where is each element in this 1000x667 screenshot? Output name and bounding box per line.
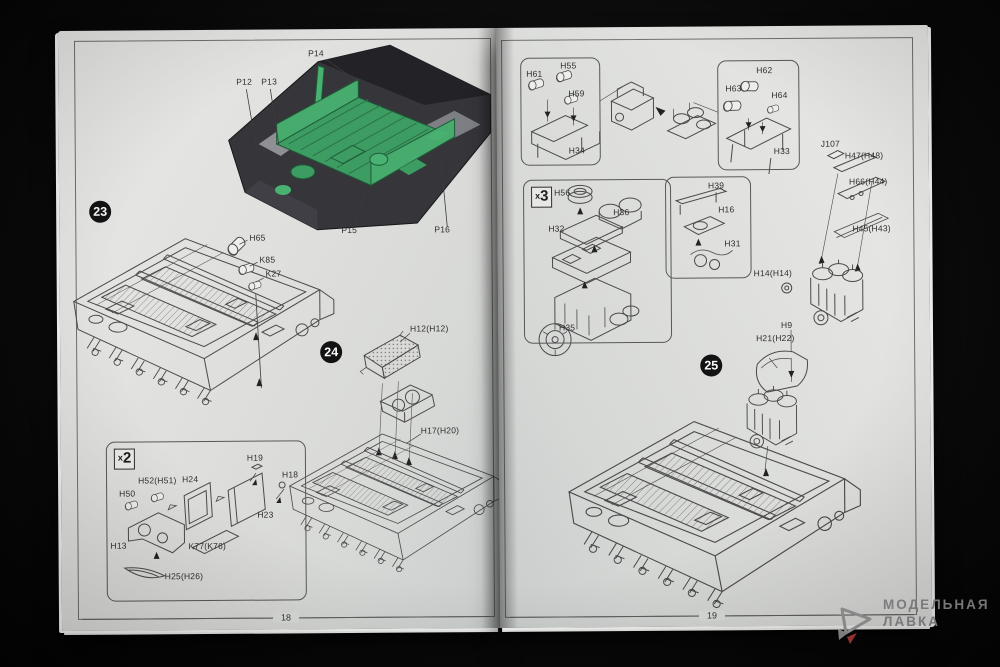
step-badge-24: 24 <box>320 341 342 363</box>
watermark-text: МОДЕЛЬНАЯ ЛАВКА <box>883 597 990 631</box>
part-label-h12: H12(H12) <box>410 324 449 333</box>
part-label-h63: H63 <box>725 84 741 93</box>
part-label-h45: H45(H43) <box>852 224 891 233</box>
part-label-h32: H32 <box>548 225 564 234</box>
part-label-p13: P13 <box>261 78 277 87</box>
part-label-h55: H55 <box>560 61 576 70</box>
part-label-h9: H9 <box>781 321 792 330</box>
part-label-h47: H47(H48) <box>845 151 884 160</box>
paper-plane-logo-icon <box>834 597 876 645</box>
part-label-h25: H25(H26) <box>165 572 204 581</box>
part-label-h18: H18 <box>282 470 298 479</box>
part-label-h61: H61 <box>526 70 542 79</box>
part-label-p16: P16 <box>434 225 450 234</box>
engine-drawing-step25 <box>747 386 797 448</box>
page-19: H61 H55 H59 H34 H62 H63 H64 H33 J107 H47… <box>496 25 932 628</box>
part-label-h36: H36 <box>613 208 629 217</box>
part-label-p12: P12 <box>236 78 252 87</box>
column-drawing <box>818 150 889 271</box>
part-label-j107: J107 <box>821 140 840 149</box>
watermark-line1: МОДЕЛЬНАЯ <box>883 597 990 614</box>
booklet: P12 P13 P14 P15 P16 23 H65 K85 K27 24 H1… <box>58 25 932 631</box>
part-label-h50: H50 <box>119 490 135 499</box>
step25-drawing <box>756 330 808 476</box>
multiplier-x3: x3 <box>531 187 553 208</box>
multiplier-x3-value: 3 <box>540 188 548 205</box>
part-label-h31: H31 <box>724 239 740 248</box>
part-label-h34: H34 <box>569 146 585 155</box>
page-number-18: 18 <box>273 612 299 622</box>
x2-repeat-box <box>106 440 307 601</box>
photo-of-instruction-booklet: P12 P13 P14 P15 P16 23 H65 K85 K27 24 H1… <box>0 0 1000 667</box>
part-label-h64: H64 <box>771 91 787 100</box>
multiplier-x2-value: 2 <box>123 450 131 467</box>
part-label-p15: P15 <box>341 226 357 235</box>
part-label-h52: H52(H51) <box>138 476 177 485</box>
part-label-h33: H33 <box>774 147 790 156</box>
part-label-h66: H66(H44) <box>849 177 888 186</box>
part-label-h21: H21(H22) <box>756 334 795 343</box>
step25-hull-drawing <box>569 420 861 608</box>
step-badge-23: 23 <box>89 201 111 223</box>
part-label-h59: H59 <box>568 89 584 98</box>
part-label-h14: H14(H14) <box>754 269 793 278</box>
step23-hull-drawing <box>73 235 334 406</box>
part-label-h56: H56 <box>554 188 570 197</box>
part-label-k85: K85 <box>259 256 275 265</box>
subassembly-box-d <box>665 176 752 279</box>
part-label-h17: H17(H20) <box>421 426 460 435</box>
part-label-k27: K27 <box>266 269 282 278</box>
part-label-h16: H16 <box>718 205 734 214</box>
washer-h14 <box>782 283 792 293</box>
shop-watermark: МОДЕЛЬНАЯ ЛАВКА <box>834 597 990 645</box>
part-label-h24: H24 <box>182 475 198 484</box>
cad-render <box>228 45 491 231</box>
part-label-p14: P14 <box>308 49 324 58</box>
part-label-h39: H39 <box>708 181 724 190</box>
page-number-19: 19 <box>699 610 725 620</box>
part-label-h35: H35 <box>559 323 575 332</box>
part-label-h62: H62 <box>756 66 772 75</box>
page-18: P12 P13 P14 P15 P16 23 H65 K85 K27 24 H1… <box>58 28 500 631</box>
watermark-line2: ЛАВКА <box>883 614 990 631</box>
part-label-h65: H65 <box>249 234 265 243</box>
multiplier-x2: x2 <box>114 449 136 470</box>
assembly-drawing-2 <box>667 102 715 138</box>
part-label-h23: H23 <box>257 511 273 520</box>
part-label-h13: H13 <box>110 542 126 551</box>
engine-drawing-right <box>811 259 863 324</box>
step24-drawing <box>289 330 500 572</box>
part-label-k77: K77(K76) <box>188 542 226 551</box>
step-badge-25: 25 <box>700 354 722 376</box>
part-label-h19: H19 <box>247 454 263 463</box>
